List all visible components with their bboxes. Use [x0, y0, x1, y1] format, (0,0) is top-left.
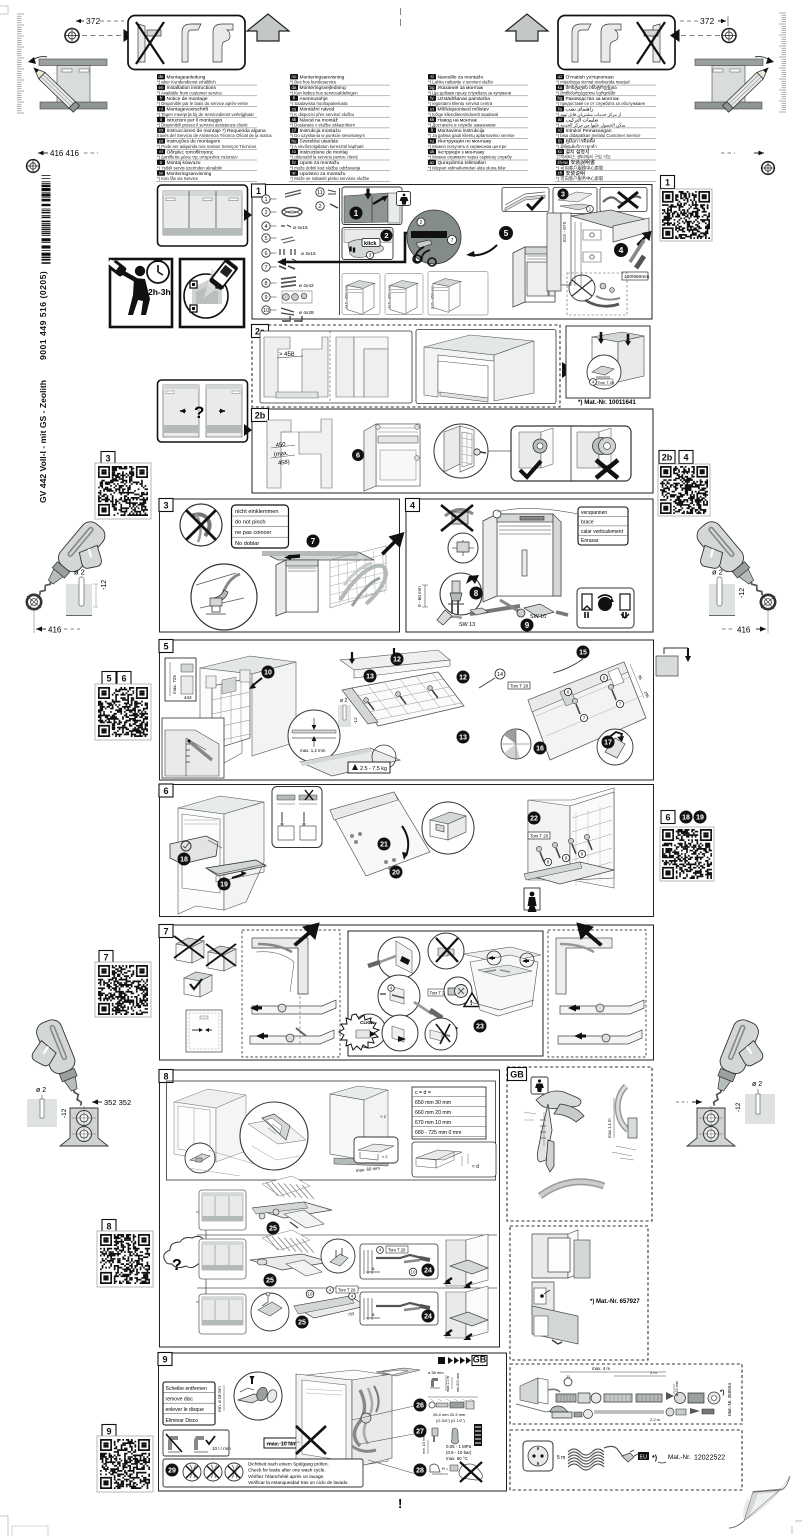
- svg-text:815 - 850 mm: 815 - 850 mm: [431, 286, 435, 309]
- svg-text:1: 1: [264, 197, 267, 203]
- svg-text:*) aber Kundendienst erhältlic: *) aber Kundendienst erhältlich: [157, 80, 216, 85]
- svg-text:*) Kan købes hos serviceafdeli: *) Kan købes hos serviceafdelingen: [290, 90, 358, 95]
- svg-text:*) Yetkili servis üzerinden al: *) Yetkili servis üzerinden alınabilir: [157, 165, 223, 170]
- svg-text:do not pinch: do not pinch: [235, 520, 265, 526]
- svg-text:klick: klick: [364, 241, 377, 247]
- svg-text:*) Можна отримати через сервіс: *) Можна отримати через сервісну службу: [428, 155, 513, 160]
- svg-text:id: id: [558, 128, 562, 133]
- svg-text:5 m: 5 m: [557, 1455, 565, 1461]
- svg-text:7: 7: [163, 926, 168, 936]
- svg-text:el: el: [159, 149, 162, 154]
- svg-text:21: 21: [380, 842, 388, 849]
- svg-text:no: no: [292, 74, 297, 79]
- svg-text:2: 2: [264, 210, 267, 216]
- svg-text:sr: sr: [292, 171, 296, 176]
- svg-text:9001 449 516 (0205): 9001 449 516 (0205): [38, 271, 48, 360]
- svg-text:9: 9: [525, 621, 530, 630]
- svg-text:SW 13: SW 13: [459, 622, 475, 628]
- svg-text:Enrasar: Enrasar: [581, 538, 599, 544]
- svg-text:(0.5 - 10 bar): (0.5 - 10 bar): [446, 1450, 472, 1455]
- svg-text:ka: ka: [558, 85, 563, 90]
- svg-text:*) Disponibili presso il servi: *) Disponibili presso il servizio assist…: [157, 123, 248, 128]
- svg-text:*) предоставя се от службата з: *) предоставя се от службата за обслужва…: [556, 101, 646, 106]
- svg-text:9: 9: [106, 1426, 111, 1436]
- svg-text:max. 725: max. 725: [172, 675, 177, 694]
- svg-text:23: 23: [476, 1024, 484, 1031]
- svg-text:6: 6: [567, 690, 570, 695]
- svg-text:Check for leaks after one wash: Check for leaks after one wash cycle.: [248, 1468, 326, 1473]
- svg-text:660 mm 20 mm: 660 mm 20 mm: [415, 1110, 451, 1116]
- svg-text:pl: pl: [292, 128, 295, 133]
- svg-text:*) Može se nabaviti preko serv: *) Može se nabaviti preko servisne služb…: [290, 176, 370, 181]
- svg-text:6: 6: [665, 812, 670, 822]
- svg-text:*) Ще добавя пръку службата за: *) Ще добавя пръку службата за купувачи: [428, 90, 512, 95]
- svg-text:28: 28: [416, 1468, 424, 1475]
- svg-text:4: 4: [264, 224, 267, 230]
- svg-text:Mat.-Nr.: Mat.-Nr.: [668, 1454, 691, 1461]
- svg-text:24: 24: [424, 1268, 432, 1275]
- svg-text:*) može dobiti kod službe održ: *) može dobiti kod službe održavanja: [290, 165, 361, 170]
- svg-text:7: 7: [264, 265, 267, 271]
- svg-text:Torx T 20: Torx T 20: [338, 1288, 356, 1293]
- svg-text:1: 1: [354, 209, 359, 218]
- svg-text:ko: ko: [558, 149, 563, 154]
- svg-text:8: 8: [106, 1221, 111, 1231]
- svg-text:100/660mm: 100/660mm: [624, 274, 649, 280]
- svg-text:ø 2: ø 2: [712, 568, 723, 577]
- svg-text:Torx T 20: Torx T 20: [598, 380, 615, 385]
- svg-text:6: 6: [121, 673, 126, 683]
- svg-text:25: 25: [298, 1320, 306, 1327]
- svg-text:4: 4: [619, 245, 624, 255]
- svg-text:815 - 875: 815 - 875: [562, 221, 568, 242]
- svg-text:7: 7: [450, 238, 453, 244]
- svg-text:!: !: [398, 1496, 402, 1511]
- svg-text:*) Ją galima gauti klientų apt: *) Ją galima gauti klientų aptarnavimo s…: [428, 133, 515, 138]
- svg-text:416: 416: [737, 626, 751, 635]
- svg-text:10: 10: [411, 1270, 416, 1275]
- svg-text:3: 3: [105, 453, 110, 463]
- svg-text:3: 3: [163, 500, 168, 510]
- svg-text:uk: uk: [430, 149, 435, 154]
- svg-text:*): *): [720, 1390, 724, 1396]
- svg-text:ø 2: ø 2: [74, 568, 85, 577]
- svg-text:14: 14: [497, 672, 503, 678]
- svg-text:-12: -12: [61, 1108, 68, 1118]
- svg-text:max. 1,2 mm: max. 1,2 mm: [300, 748, 326, 753]
- svg-text:ø 2: ø 2: [340, 698, 347, 704]
- svg-text:≈ d: ≈ d: [472, 1164, 479, 1170]
- svg-text:2: 2: [384, 231, 388, 240]
- svg-text:Vérifiez l'étanchéité après un: Vérifiez l'étanchéité après un lavage.: [248, 1474, 324, 1479]
- svg-text:través del Servicio de Asisten: través del Servicio de Asistencia Técnic…: [157, 133, 272, 138]
- svg-text:Eliminar Disco: Eliminar Disco: [166, 1418, 199, 1424]
- svg-text:es: es: [159, 128, 164, 133]
- svg-text:ro: ro: [292, 149, 296, 154]
- svg-text:min 200 mm: min 200 mm: [456, 1373, 460, 1392]
- svg-text:*) Bes hos kundeservice: *) Bes hos kundeservice: [290, 80, 337, 85]
- svg-text:Torx T 20: Torx T 20: [510, 684, 529, 689]
- svg-text:SW 10: SW 10: [530, 614, 546, 620]
- svg-text:zh: zh: [558, 171, 563, 176]
- svg-text:EU: EU: [640, 1455, 648, 1461]
- svg-text:enlever le disque: enlever le disque: [166, 1407, 205, 1413]
- svg-text:GB: GB: [473, 1354, 487, 1364]
- svg-text:10 l / min: 10 l / min: [212, 1446, 231, 1451]
- svg-text:fa: fa: [558, 106, 562, 111]
- svg-text:*) K dispozici přes servisní s: *) K dispozici přes servisní službu: [290, 112, 355, 117]
- svg-text:bg: bg: [558, 96, 563, 101]
- svg-text:26: 26: [416, 1403, 424, 1410]
- svg-text:*) Διατίθεται μέσω της υπηρεσί: *) Διατίθεται μέσω της υπηρεσίας πελατών: [157, 155, 238, 160]
- svg-text:max 1.1 m: max 1.1 m: [446, 1376, 450, 1392]
- svg-text:15: 15: [579, 650, 587, 657]
- svg-text:zh-tw: zh-tw: [557, 160, 568, 165]
- svg-text:1: 1: [665, 177, 670, 187]
- svg-text:18: 18: [682, 815, 690, 822]
- svg-text:5: 5: [504, 228, 509, 238]
- svg-text:Torx T 20: Torx T 20: [388, 1248, 406, 1253]
- svg-text:19: 19: [696, 815, 704, 822]
- svg-text:8: 8: [565, 856, 568, 861]
- svg-text:remove disc: remove disc: [166, 1397, 194, 1403]
- svg-text:1: 1: [256, 186, 261, 196]
- svg-text:*): *): [652, 1455, 657, 1462]
- svg-text:sl: sl: [430, 74, 433, 79]
- svg-text:670 mm 10 mm: 670 mm 10 mm: [415, 1120, 451, 1126]
- svg-text:a 38 mm: a 38 mm: [428, 1370, 444, 1375]
- svg-text:*) Saatavissa huoltopalvelusta: *) Saatavissa huoltopalvelusta: [290, 101, 348, 106]
- svg-text:815 - 850 mm: 815 - 850 mm: [388, 285, 392, 308]
- svg-text:CLICK: CLICK: [360, 1020, 375, 1025]
- svg-text:da: da: [292, 85, 297, 90]
- svg-text:416: 416: [48, 626, 62, 635]
- svg-text:2b: 2b: [662, 452, 673, 462]
- svg-text:*) Tegen meerprijs bij de Serv: *) Tegen meerprijs bij de Servicedienst …: [157, 112, 254, 117]
- svg-text:Torx T 20: Torx T 20: [530, 834, 549, 839]
- svg-text:8: 8: [264, 281, 267, 287]
- svg-text:26.4 mm 20.3 mm: 26.4 mm 20.3 mm: [433, 1412, 466, 1417]
- svg-text:10: 10: [264, 670, 272, 677]
- svg-text:*) mijozlarga xizmat markazida: *) mijozlarga xizmat markazida mavjud: [556, 80, 630, 85]
- svg-text:2b: 2b: [255, 410, 266, 420]
- svg-text:8: 8: [163, 1071, 168, 1081]
- svg-text:*) მომხმარებელთა სერვისში: *) მომხმარებელთა სერვისში: [556, 90, 615, 95]
- svg-text:24: 24: [424, 1314, 432, 1321]
- svg-text:*) از مرکز خدمات مشتریان قابل: *) از مرکز خدمات مشتریان قابل تهیه: [556, 112, 621, 117]
- svg-text:max. 4 m: max. 4 m: [592, 1366, 610, 1371]
- svg-text:352 352: 352 352: [104, 1098, 131, 1107]
- svg-text:R =: R =: [442, 1466, 449, 1471]
- svg-text:ø 4x42: ø 4x42: [299, 283, 314, 289]
- svg-text:uz: uz: [558, 74, 563, 79]
- svg-text:6: 6: [603, 676, 606, 681]
- svg-text:brace: brace: [581, 519, 594, 525]
- svg-text:12: 12: [459, 675, 467, 682]
- svg-text:*) يمكن الحصول عليها من مركز ا: *) يمكن الحصول عليها من مركز الخدمة: [556, 123, 625, 128]
- svg-text:min. 10 mm: min. 10 mm: [422, 1435, 426, 1454]
- svg-text:No doblar: No doblar: [235, 541, 259, 547]
- svg-text:6: 6: [163, 786, 168, 796]
- svg-text:en: en: [159, 85, 164, 90]
- svg-text:de: de: [159, 74, 164, 79]
- svg-text:min. ø 18 mm: min. ø 18 mm: [217, 1386, 222, 1412]
- svg-text:*) Lahko nabavite v servisni s: *) Lahko nabavite v servisni službi: [428, 80, 493, 85]
- svg-text:2 m: 2 m: [650, 1370, 657, 1375]
- svg-text:bg: bg: [430, 85, 435, 90]
- svg-text:ø 4x15: ø 4x15: [293, 225, 308, 231]
- svg-text:nicht einklemmen: nicht einklemmen: [235, 509, 279, 515]
- svg-text:450: 450: [276, 442, 286, 449]
- svg-text:*) Müştəri xidmətlərindən əldə: *) Müştəri xidmətlərindən əldə oluna bil…: [428, 165, 506, 170]
- svg-text:7: 7: [103, 952, 108, 962]
- svg-text:0.05 - 1 MPa: 0.05 - 1 MPa: [446, 1444, 472, 1449]
- svg-text:fi: fi: [293, 96, 295, 101]
- svg-text:Dichtheit nach einem Spülgang: Dichtheit nach einem Spülgang prüfen.: [248, 1462, 329, 1467]
- svg-text:10: 10: [308, 1292, 313, 1297]
- svg-text:29: 29: [168, 1468, 176, 1475]
- svg-text:9: 9: [264, 295, 267, 301]
- svg-text:2.5 - 7.5 kg: 2.5 - 7.5 kg: [360, 766, 387, 772]
- svg-text:19: 19: [220, 882, 228, 889]
- svg-text:hr: hr: [292, 160, 296, 165]
- svg-text:2: 2: [420, 220, 423, 226]
- svg-text:-12: -12: [353, 717, 358, 724]
- svg-text:GV 442 Voll-I - mit GS - Zeoli: GV 442 Voll-I - mit GS - Zeolith: [38, 380, 48, 503]
- svg-text:Scheibe entfernen: Scheibe entfernen: [166, 1386, 208, 1392]
- svg-text:*) bisa didapatkan melalui Cu: *) bisa didapatkan melalui Customer Serv…: [556, 133, 641, 138]
- svg-text:416 416: 416 416: [50, 149, 79, 158]
- svg-text:2: 2: [318, 204, 321, 210]
- svg-text:hu: hu: [292, 138, 297, 143]
- svg-text:c = d =: c = d =: [415, 1090, 431, 1096]
- svg-text:verspannen: verspannen: [581, 510, 607, 516]
- svg-text:650 mm 30 mm: 650 mm 30 mm: [415, 1100, 451, 1106]
- svg-text:8: 8: [474, 589, 479, 598]
- svg-text:*) Available from customer ser: *) Available from customer service: [157, 90, 222, 95]
- svg-text:5: 5: [264, 236, 267, 242]
- svg-text:ø 22 mm: ø 22 mm: [675, 1381, 679, 1396]
- svg-text:ø 4x28: ø 4x28: [299, 310, 314, 316]
- svg-text:4: 4: [410, 500, 415, 510]
- svg-text:*) Можно получить в сервисном: *) Можно получить в сервисном центре: [428, 144, 507, 149]
- svg-text:815 - 850 mm: 815 - 850 mm: [345, 285, 349, 308]
- svg-text:3: 3: [561, 192, 565, 199]
- svg-text:5: 5: [163, 641, 168, 651]
- svg-text:20: 20: [392, 870, 400, 877]
- svg-text:ø 4x15: ø 4x15: [301, 251, 316, 257]
- svg-text:7: 7: [619, 702, 622, 707]
- svg-text:17: 17: [604, 740, 612, 747]
- svg-text:6: 6: [356, 451, 360, 460]
- svg-text:-12: -12: [101, 580, 108, 590]
- svg-text:az: az: [430, 160, 435, 165]
- svg-text:max 1.1 m: max 1.1 m: [607, 1118, 612, 1138]
- svg-text:7: 7: [311, 537, 316, 546]
- svg-text:9: 9: [162, 1354, 167, 1364]
- svg-text:GB: GB: [510, 1069, 524, 1079]
- svg-text:*) Достанете в службе заказник: *) Достанете в службе заказников: [428, 123, 496, 128]
- svg-text:nl: nl: [159, 106, 162, 111]
- svg-text:16: 16: [536, 746, 544, 753]
- svg-text:ø 2: ø 2: [752, 1081, 762, 1088]
- svg-text:*) obtenabil la serviciu pentr: *) obtenabil la serviciu pentru clienți: [290, 155, 358, 160]
- svg-text:*) Kõige klienditeeninduselt s: *) Kõige klienditeeninduselt saadaval: [428, 112, 498, 117]
- svg-text:372: 372: [86, 16, 100, 26]
- svg-text:Mat.-Nr. 350554: Mat.-Nr. 350554: [727, 1383, 732, 1416]
- svg-text:18: 18: [180, 857, 188, 864]
- svg-text:8: 8: [581, 852, 584, 857]
- svg-text:≈ c: ≈ c: [382, 1154, 388, 1159]
- svg-text:13: 13: [459, 735, 467, 742]
- svg-text:*) 可向客戶服務中心索取: *) 可向客戶服務中心索取: [556, 164, 604, 171]
- svg-text:3: 3: [369, 253, 372, 259]
- svg-text:10: 10: [263, 308, 269, 314]
- svg-text:25: 25: [266, 1278, 274, 1285]
- svg-text:-12: -12: [739, 588, 746, 598]
- svg-text:2,2 m: 2,2 m: [650, 1417, 661, 1422]
- svg-text:*) A vevőszolgálaton keresztül: *) A vevőszolgálaton keresztül kapható: [290, 144, 364, 149]
- svg-text:680 - 725 mm 0 mm: 680 - 725 mm 0 mm: [415, 1130, 461, 1136]
- svg-text:12022522: 12022522: [694, 1455, 725, 1462]
- svg-text:372: 372: [700, 16, 714, 26]
- svg-text:25: 25: [269, 1226, 277, 1233]
- svg-text:≈ c: ≈ c: [380, 1114, 387, 1119]
- svg-text:27: 27: [416, 1429, 424, 1436]
- svg-text:*) Disponible par le biais du: *) Disponible par le biais du service ap…: [157, 101, 249, 106]
- svg-text:4: 4: [683, 452, 688, 462]
- svg-text:11: 11: [317, 190, 323, 196]
- svg-text:13: 13: [366, 674, 374, 681]
- svg-text:th: th: [558, 138, 562, 143]
- svg-text:ø 2: ø 2: [36, 1087, 46, 1094]
- svg-text:?: ?: [194, 403, 204, 422]
- svg-text:?: ?: [172, 1257, 182, 1274]
- svg-text:12: 12: [393, 657, 401, 664]
- svg-text:Verificar la estanqueidad tras: Verificar la estanqueidad tras un ciclo …: [248, 1480, 349, 1485]
- svg-text:7: 7: [583, 716, 586, 721]
- svg-text:*) Mat.-Nr. 657927: *) Mat.-Nr. 657927: [590, 1299, 640, 1305]
- svg-text:*) iegūstami klientu servisa c: *) iegūstami klientu servisa centrā: [428, 101, 493, 106]
- svg-text:(G 3/4") (G 1/2"): (G 3/4") (G 1/2"): [436, 1418, 466, 1423]
- svg-text:22: 22: [530, 816, 538, 823]
- svg-text:*) Do uzyskania w punkcie serw: *) Do uzyskania w punkcie serwisowym: [290, 133, 365, 138]
- svg-text:5: 5: [106, 673, 111, 683]
- svg-text:-12: -12: [735, 1102, 742, 1112]
- svg-text:444: 444: [184, 695, 192, 700]
- svg-text:*) Kan fås via Service: *) Kan fås via Service: [157, 176, 199, 181]
- svg-text:calar verticalement: calar verticalement: [581, 529, 624, 535]
- svg-text:max. 60 °C: max. 60 °C: [446, 1456, 468, 1461]
- svg-text:ru: ru: [430, 138, 434, 143]
- svg-text:ar: ar: [558, 117, 562, 122]
- svg-text:*) 可向客户服务中心索取: *) 可向客户服务中心索取: [556, 175, 604, 182]
- svg-text:6: 6: [264, 251, 267, 257]
- svg-text:ne pas coincer: ne pas coincer: [235, 530, 272, 536]
- svg-text:*) Dostanete v službe zákazník: *) Dostanete v službe zákazníkom: [290, 123, 355, 128]
- svg-text:8: 8: [547, 860, 550, 865]
- svg-text:0 - 60 mm: 0 - 60 mm: [417, 586, 422, 607]
- svg-text:*) Mat.-Nr. 10011641: *) Mat.-Nr. 10011641: [578, 399, 636, 406]
- svg-text:*) Pode ser adquirida nos noss: *) Pode ser adquirida nos nossos Serviço…: [157, 144, 256, 149]
